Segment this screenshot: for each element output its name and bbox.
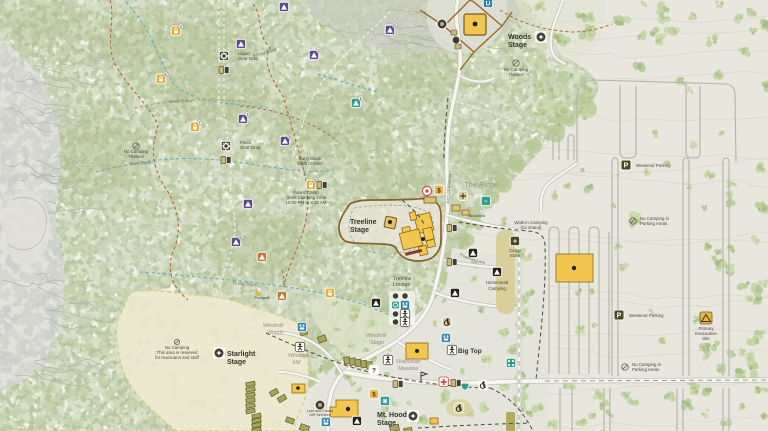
svg-text:'Pungent': 'Pungent' bbox=[254, 295, 271, 300]
svg-text:Meadow: Meadow bbox=[398, 366, 419, 372]
svg-text:Gear Drop: Gear Drop bbox=[240, 145, 261, 150]
svg-text:'Eight Chimes': 'Eight Chimes' bbox=[297, 161, 324, 166]
svg-text:Big Top: Big Top bbox=[458, 348, 482, 355]
svg-text:Homestead: Homestead bbox=[486, 280, 509, 285]
svg-text:Camping: Camping bbox=[488, 286, 506, 291]
svg-text:Stage: Stage bbox=[508, 42, 527, 49]
svg-text:?: ? bbox=[372, 367, 376, 374]
svg-text:Beck Trace: Beck Trace bbox=[170, 98, 193, 104]
svg-text:Wallflower: Wallflower bbox=[396, 359, 421, 365]
svg-text:Stage: Stage bbox=[350, 227, 369, 234]
svg-text:Parking Areas: Parking Areas bbox=[632, 367, 660, 372]
svg-text:+: + bbox=[513, 238, 517, 245]
svg-text:Site: Site bbox=[702, 336, 710, 341]
svg-text:Weekend Parking: Weekend Parking bbox=[636, 163, 671, 168]
svg-text:Mt. Hood: Mt. Hood bbox=[377, 412, 407, 419]
svg-text:~: ~ bbox=[484, 199, 488, 205]
svg-text:The Ridge: The Ridge bbox=[464, 180, 499, 189]
svg-text:Stage: Stage bbox=[377, 420, 396, 427]
svg-text:P: P bbox=[624, 163, 629, 170]
svg-text:Parking Areas: Parking Areas bbox=[640, 221, 668, 226]
svg-text:Woods: Woods bbox=[267, 330, 284, 336]
svg-text:Gift Services: Gift Services bbox=[309, 413, 331, 417]
svg-text:Treeline: Treeline bbox=[350, 219, 377, 226]
svg-text:Hill: Hill bbox=[293, 360, 301, 366]
svg-text:10:00 PM to 8:00 AM: 10:00 PM to 8:00 AM bbox=[285, 200, 326, 205]
svg-text:Stage: Stage bbox=[370, 340, 384, 346]
svg-text:Woods: Woods bbox=[508, 34, 531, 41]
svg-text:Weekend Parking: Weekend Parking bbox=[629, 313, 664, 318]
svg-text:Blackbird: Blackbird bbox=[469, 213, 485, 218]
svg-text:Stage: Stage bbox=[227, 359, 246, 366]
svg-text:for musicians and staff: for musicians and staff bbox=[155, 355, 200, 360]
svg-text:U: U bbox=[486, 0, 491, 7]
svg-text:Windmill: Windmill bbox=[366, 333, 387, 339]
svg-text:Thanks!: Thanks! bbox=[128, 154, 144, 159]
svg-text:Lounge: Lounge bbox=[393, 282, 410, 288]
svg-text:Windmill: Windmill bbox=[263, 323, 284, 329]
svg-text:Windmill: Windmill bbox=[288, 353, 309, 359]
svg-text:(no sound): (no sound) bbox=[521, 225, 543, 230]
svg-text:Thanks!: Thanks! bbox=[508, 72, 524, 77]
svg-text:Store: Store bbox=[510, 253, 521, 258]
svg-text:P: P bbox=[617, 313, 622, 320]
svg-text:Starlight: Starlight bbox=[227, 351, 256, 358]
